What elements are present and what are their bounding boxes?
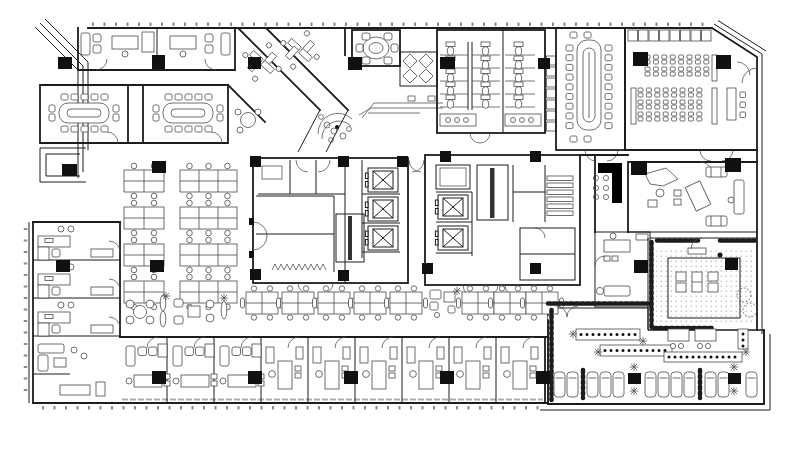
cabinet-row — [628, 30, 711, 41]
lounge-seating — [685, 167, 744, 226]
mid-lounge — [430, 290, 455, 318]
elevator — [365, 197, 398, 221]
perimeter-offices-west — [33, 226, 120, 396]
small-meeting-square-tables — [400, 52, 437, 86]
floor-plan-canvas — [0, 0, 800, 451]
restrooms — [437, 30, 545, 143]
elevator — [435, 226, 468, 250]
terrace-bar-counters — [569, 329, 750, 362]
planter-box — [728, 373, 741, 384]
training-chairs — [638, 55, 709, 121]
planter-box — [628, 373, 641, 384]
reception — [318, 113, 352, 142]
entrance-canopy — [35, 19, 88, 182]
planter-box — [725, 258, 738, 270]
core-west — [249, 158, 408, 294]
podium — [727, 88, 746, 120]
angled-team-rooms — [228, 22, 348, 152]
corner-round-table — [235, 109, 261, 133]
corner-lounge-office — [38, 344, 105, 396]
elevator — [365, 226, 398, 250]
open-office-west — [124, 163, 237, 310]
perimeter-offices-south — [126, 337, 538, 403]
bench-desk-row — [241, 286, 564, 320]
stair-west — [336, 214, 364, 262]
training-room — [625, 28, 757, 161]
coffee-counter — [593, 163, 622, 203]
boardroom — [556, 28, 625, 161]
meeting-rooms-west — [40, 85, 228, 143]
elevator — [365, 168, 398, 192]
washbasins — [440, 114, 541, 126]
storage-shelves — [547, 176, 573, 216]
elevator — [435, 195, 468, 219]
floor-plan-svg — [0, 0, 800, 451]
entry-counter — [359, 96, 443, 118]
core-east — [409, 155, 580, 296]
stair-east — [477, 165, 508, 220]
